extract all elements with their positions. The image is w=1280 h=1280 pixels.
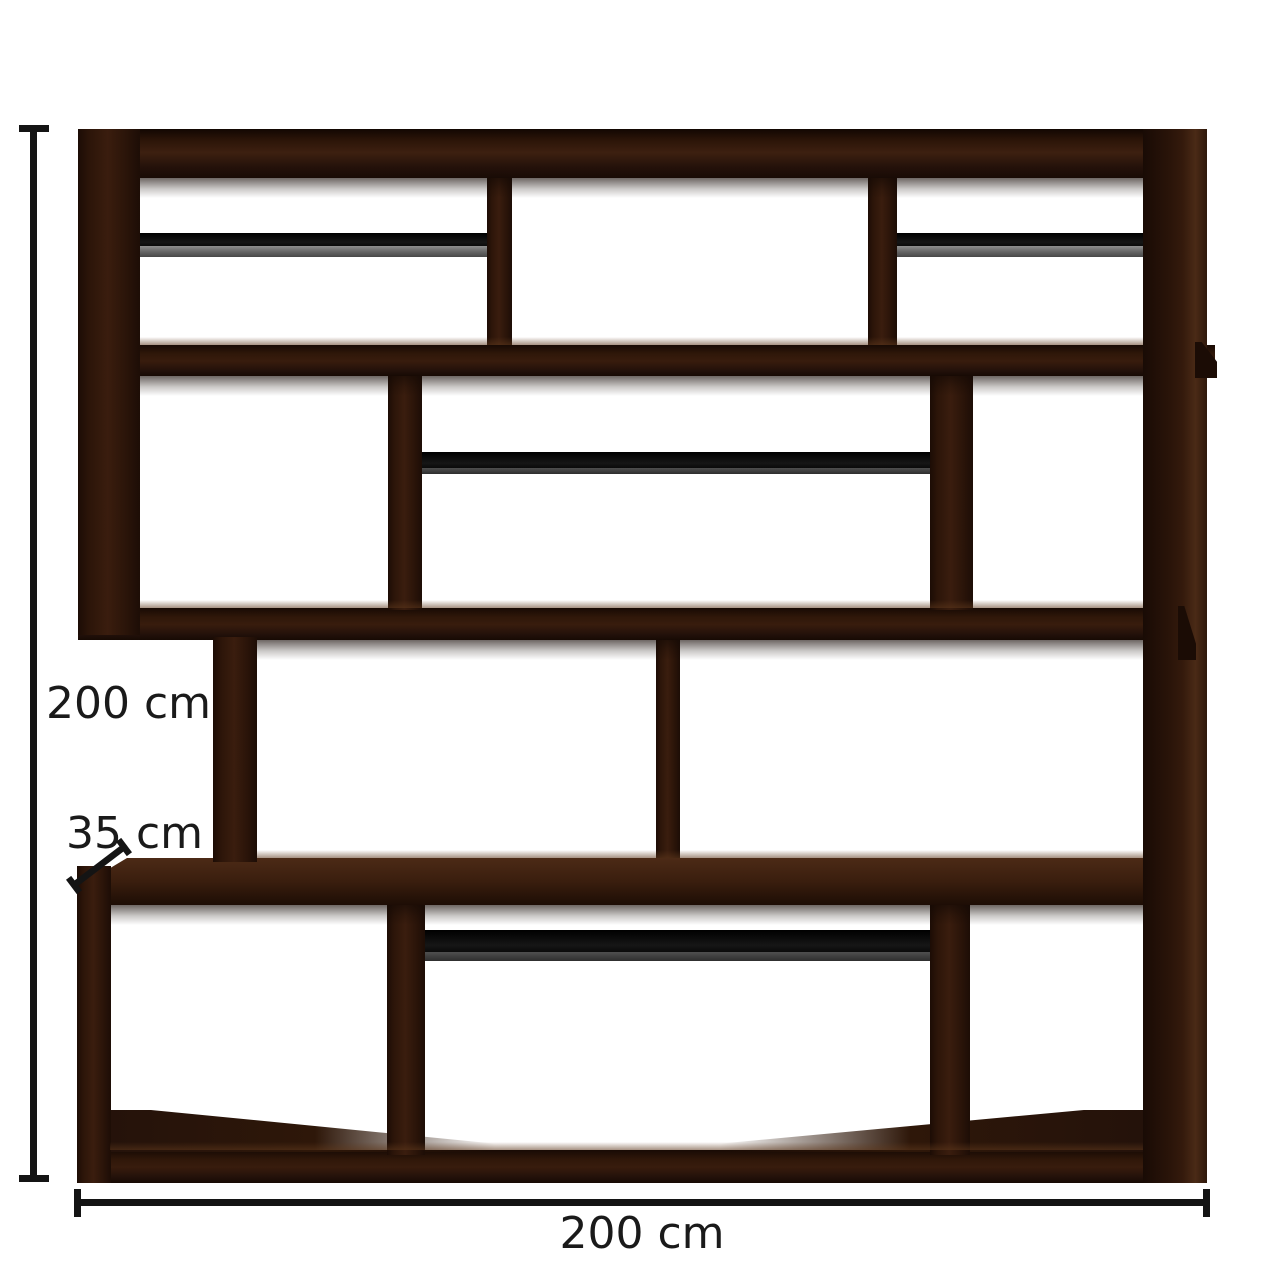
bookcase-shelf-tier3-step	[77, 858, 1190, 905]
rail-shine	[897, 246, 1143, 257]
tier4-floor-strip	[110, 1142, 1143, 1150]
depth-arrow-icon	[60, 830, 140, 900]
rail-shine	[425, 952, 930, 961]
height-dimension-line	[30, 128, 37, 1182]
tier1-divider-left	[487, 178, 512, 345]
height-dimension-label: 200 cm	[46, 682, 211, 726]
height-dimension-cap-bottom	[19, 1175, 49, 1182]
tier2-inner-shadow	[140, 376, 1143, 396]
tier1-inner-shadow	[140, 178, 1143, 198]
bookcase-right-wall	[1143, 129, 1207, 1183]
rail-shine	[140, 246, 487, 257]
tier2-divider-left	[388, 376, 422, 610]
bookcase-shelf-tier1	[78, 345, 1215, 376]
tier2-divider-right	[930, 376, 973, 610]
tier3-floor-strip	[257, 850, 1143, 858]
bookcase-left-wall-tier4	[77, 866, 111, 1183]
width-dimension-label: 200 cm	[77, 1212, 1207, 1256]
tier4-divider-right	[930, 905, 970, 1155]
tier1-divider-right	[868, 178, 897, 345]
bookcase-base-panel	[77, 1150, 1207, 1183]
width-dimension-line	[77, 1199, 1207, 1206]
tier2-floor-strip	[140, 600, 1143, 608]
bookcase-shelf-tier2	[78, 608, 1193, 640]
bookcase-top-panel	[78, 129, 1207, 178]
height-dimension-cap-top	[19, 125, 49, 132]
bookcase-left-wall-tier3	[213, 637, 257, 862]
rail-bar	[897, 233, 1143, 246]
bookcase-left-wall-upper	[78, 129, 140, 635]
tier4-inner-shadow	[110, 905, 1143, 925]
tier3-inner-shadow	[257, 640, 1143, 660]
rail-shine	[422, 468, 930, 474]
rail-bar	[425, 930, 930, 952]
rail-bar	[140, 233, 487, 246]
tier4-divider-left	[387, 905, 425, 1155]
tier1-floor-strip	[140, 337, 1143, 345]
furniture-dimension-diagram: 200 cm 35 cm 200 cm	[0, 0, 1280, 1280]
tier3-divider	[656, 640, 680, 858]
rail-bar	[422, 452, 930, 468]
